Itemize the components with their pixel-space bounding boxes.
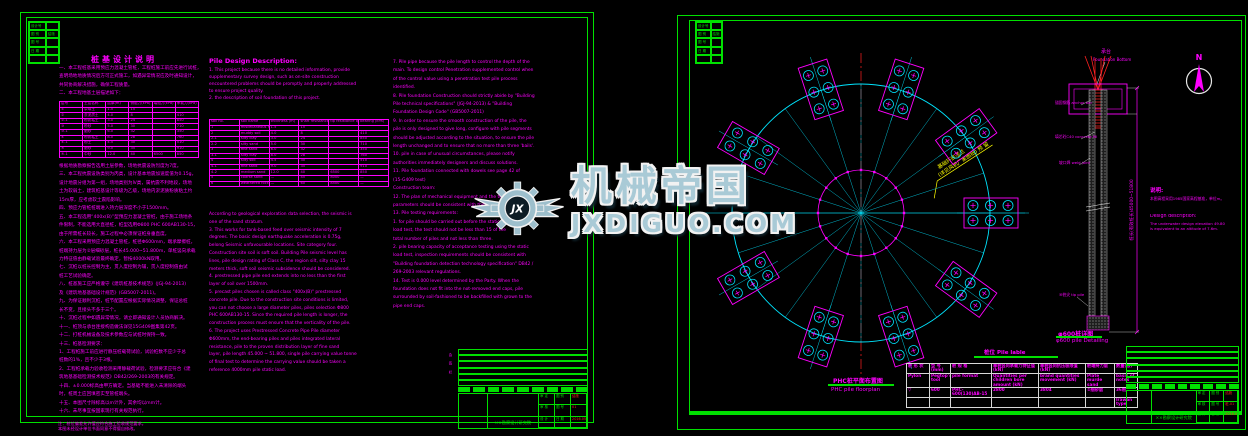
text-line: foundation does not fit into the not-rem…: [393, 286, 589, 294]
text-line: 桩端持力层为②层细砂层，桩长45.000~51.800m，单桩竖向承载: [59, 248, 201, 256]
cell: 中砂: [83, 152, 106, 158]
right-title-block: ××勘察设计研究院 审 定图 别结施审 核图 号桩-01设 计日 期2016.0…: [1126, 346, 1239, 424]
cell: 单桩竖向承载力特征值(kN): [992, 364, 1039, 374]
field-label: 图 别: [1210, 391, 1224, 401]
legend-cell-value: [46, 47, 59, 55]
text-line: belong Seismic unfavourable locations. S…: [209, 242, 391, 250]
text-line: 四、预应力管桩桩端进入持力层深度不小于1500mm。: [59, 205, 201, 213]
text-line: 十五、本图尺寸除标高以m计外，其余均以mm计。: [59, 400, 201, 408]
cell: Pegtop's tool: [930, 373, 951, 387]
inner-circle-tick: [847, 171, 849, 173]
inner-circle-tick: [873, 253, 875, 255]
inner-circle-tick: [901, 225, 903, 227]
text-line: 本图未经设计单位书面同意不得擅自修改。: [58, 426, 146, 431]
cn-soil-table: 层号土层名称层厚(m)侧阻力(kPa)端阻力(kPa)承载力(kPa) ①杂填土…: [59, 101, 199, 158]
field-label: 设 计: [539, 417, 555, 427]
text-line: 6. The project uses Prestressed Concrete…: [209, 328, 391, 336]
detail-caption-en: φ600 pile Detailing: [1056, 338, 1108, 344]
text-line: you can not choose a large diameter pile…: [209, 305, 391, 313]
text-line: 筑地基基础检测技术规范》DB42/269-2003的有关规定。: [59, 374, 201, 382]
title-block-logo-area: [1127, 391, 1152, 423]
text-line: 时，桩周土应回填密实至管桩端头。: [59, 391, 201, 399]
inner-circle-tick: [819, 225, 821, 227]
inner-circle-tick: [895, 187, 897, 189]
text-line: 查明场地地质情况后方可正式施工，如遇异常情况应及时通知设计，: [59, 73, 201, 81]
left-legend-table: 设计号图 别结施图 号日 期: [28, 21, 60, 64]
text-line: supplementary survey design, such as on-…: [209, 74, 391, 81]
field-label: 审 定: [539, 394, 555, 404]
text-line: encountered problems should be promptly …: [209, 81, 391, 88]
cell: Quantities per children bore amount (kN): [992, 373, 1039, 387]
stamp-block: [1152, 384, 1162, 389]
cell: 40: [129, 152, 152, 158]
inner-circle-tick: [885, 247, 887, 249]
legend-cell-value: [46, 22, 59, 30]
inner-circle-tick: [860, 169, 862, 171]
cad-viewer-canvas: 设计号图 别结施图 号日 期 桩基设计说明 一、本工程桩基采用预应力混凝土管桩，…: [0, 0, 1248, 436]
header-cell: 端阻力(kPa): [152, 102, 175, 108]
stamp-block: [502, 387, 514, 392]
text-line: Construction site soil is soft soil. Bui…: [209, 250, 391, 258]
text-line: degrees. The basic design earthquake acc…: [209, 234, 391, 242]
pile-wall-left: [1089, 90, 1095, 316]
pile-cap-group: [930, 257, 1003, 321]
plan-caption-underline: [828, 384, 894, 386]
radial-spoke: [861, 213, 984, 253]
legend-cell-label: [29, 55, 46, 63]
cell: PHC-600(130)AB-15: [951, 388, 992, 398]
label-leader: [1077, 297, 1088, 306]
text-line: 14. Test is 0.000 level determined by th…: [393, 278, 589, 286]
field-label: 日 期: [1210, 412, 1224, 422]
text-line: identified.: [393, 84, 589, 92]
text-line: layer of soil over 1500mm.: [209, 281, 391, 289]
design-note-title-cn: 说明:: [1150, 186, 1242, 194]
cell: 3804: [1039, 388, 1086, 398]
stamp-block: [1178, 384, 1188, 389]
text-line: Pile technical specifications" (JGJ-94-2…: [393, 101, 589, 109]
field-row: 审 核图 号01: [539, 405, 587, 416]
detail-label-tip: ⑩桩尖 tip pile: [1059, 292, 1085, 297]
pile-table-row: ▽ 600 PHC-600(130)AB-15 2800 3804 ②细砂层 3…: [907, 388, 1138, 398]
text-line: 十四、±0.000标高由甲方确定。当基础不能进入未清除的端头: [59, 383, 201, 391]
text-line: 六、本工程采用预应力混凝土管桩，桩径Φ600mm，端承摩擦桩，: [59, 239, 201, 247]
cap-label-cn: 承台: [1101, 48, 1111, 55]
en-soil-table: soil no.soil namethickness (m)shaft resi…: [209, 119, 389, 187]
cell: 型 号(mm): [930, 364, 951, 374]
cell: 8500: [329, 181, 359, 187]
stamp-block: [1165, 384, 1175, 389]
text-line: 共同协商解决措施，确保工程质量。: [59, 82, 201, 90]
text-line: surrounded by soil-fashioned to be backf…: [393, 294, 589, 302]
text-line: concrete pile. Due to the construction s…: [209, 297, 391, 305]
logo-monogram: JX: [509, 202, 524, 215]
text-line: 八、桩基施工应严格遵守《建筑桩基技术规范》(JGJ-94-2013): [59, 281, 201, 289]
field-label: 图 别: [555, 394, 571, 404]
cell: —: [269, 181, 299, 187]
inner-circle-tick: [817, 212, 819, 214]
cell: 桩 形 状: [907, 364, 930, 374]
cell: pile format: [951, 373, 992, 387]
watermark-text: 机械帝国 JXDIGUO.COM: [571, 164, 798, 264]
text-line: 三、本工程抗震设防类别为丙类，设计基本地震加速度值为0.15g，: [59, 171, 201, 179]
radial-spoke: [861, 173, 984, 213]
cell: 单桩竖向抗压极限值(kN): [1039, 364, 1086, 374]
text-line: 1. This project because there is no deta…: [209, 67, 391, 74]
stamp-blocks: [458, 387, 588, 392]
field-label: 图 号: [1210, 402, 1224, 412]
text-line: 7. Pile pipe because the pile length to …: [393, 59, 589, 67]
revision-rows: [1126, 346, 1239, 383]
text-line: length unchanged and to ensure that no m…: [393, 143, 589, 151]
detail-label-anchor: 锚固钢筋 anchor bar: [1055, 100, 1092, 105]
left-title-block: ××勘察设计研究院 审 定图 别结施审 核图 号01设 计日 期2016.05: [458, 349, 588, 429]
pile-cap-group: [876, 52, 926, 126]
field-value: 桩-01: [1224, 402, 1238, 412]
text-line: layer, pile length 45.000 ~ 51.800, sing…: [209, 351, 391, 359]
text-line: 一、本工程桩基采用预应力混凝土管桩，工程桩施工前应先进行试桩，: [59, 65, 201, 73]
stamp-block: [458, 387, 470, 392]
design-note-line-en2: is equivalent to an altitude of 7.6m.: [1150, 226, 1242, 231]
text-line: 5. precast piles chosen is called class …: [209, 289, 391, 297]
text-line: 九、为保证顺利沉桩，桩节配置应根据实际情况调整，保证总桩: [59, 298, 201, 306]
stamp-block: [1190, 384, 1200, 389]
stamp-block: [517, 387, 529, 392]
text-line: 15m厚，应考虑软土震陷影响。: [59, 197, 201, 205]
stamp-block: [488, 387, 500, 392]
stamp-block: [1139, 384, 1149, 389]
text-line: 桩数的1%，且不少于3根。: [59, 357, 201, 365]
cell: 桩端持力层: [1086, 364, 1115, 374]
left-sheet-footer-notes: 注：桩位偏差允许值应符合施工验收规范要求。本图未经设计单位书面同意不得擅自修改。: [58, 421, 146, 432]
watermark-brand: 机械帝国: [571, 164, 798, 208]
text-line: 件限制，不能选用大直径桩，桩型选用Φ800 PHC 600AB130-15，: [59, 222, 201, 230]
field-label: 设 计: [1197, 412, 1211, 422]
inner-circle-tick: [825, 237, 827, 239]
text-line: should be adjusted according to the situ…: [393, 135, 589, 143]
text-line: 2、工程桩承载力验收检测采用静载荷试验，检测要求应符合《建: [59, 366, 201, 374]
text-line: 土为软弱土，建筑桩基设计等级为乙级，场地内淤泥质粉质粘土约: [59, 188, 201, 196]
pile-cap-group: [957, 198, 1025, 228]
legend-cell-label: 设计号: [29, 22, 46, 30]
text-line: 二、本工程地基土层描述如下：: [59, 90, 201, 98]
design-note-line-cn: 本图高程采用1985国家高程基准，单位m。: [1150, 196, 1242, 202]
field-label: 图 号: [555, 405, 571, 415]
detail-label-fill: 填芯砼C40 concrete fill: [1055, 134, 1097, 139]
field-row: 审 定图 别结施: [1197, 391, 1238, 402]
field-row: 设 计日 期2016.05: [1197, 412, 1238, 423]
cell: —: [359, 181, 389, 187]
en-intro-paragraph: 1. This project because there is no deta…: [209, 67, 391, 102]
text-line: 十六、未尽事宜按国家现行有关规范执行。: [59, 408, 201, 416]
cap-label-en: Foundation Bottom: [1093, 57, 1131, 62]
institute-name: ××勘察设计研究院: [488, 394, 539, 428]
signature-strip: 会 签 栏: [449, 353, 454, 423]
text-line: 长不变，且接头不多于三个。: [59, 307, 201, 315]
text-line: 桩工艺试验确定。: [59, 273, 201, 281]
text-line: 4. prestressed pipe pile end extends int…: [209, 273, 391, 281]
field-label: 审 核: [1197, 402, 1211, 412]
field-label: 审 定: [1197, 391, 1211, 401]
cn-intro-paragraph: 一、本工程桩基采用预应力混凝土管桩，工程桩施工前应先进行试桩，查明场地地质情况后…: [59, 65, 201, 99]
cell: ▽: [907, 388, 930, 398]
text-line: 十、沉桩过程中如遇异常情况，请立即通知设计人员协商解决。: [59, 315, 201, 323]
design-note-block: 说明: 本图高程采用1985国家高程基准，单位m。 Design descrip…: [1150, 186, 1242, 231]
header-cell: bearing (kPa): [359, 120, 389, 126]
cell: 850: [175, 152, 198, 158]
field-value: 2016.05: [571, 417, 587, 427]
watermark-domain: JXDIGUO.COM: [571, 210, 798, 238]
text-line: 1、工程桩施工前应进行静压桩载荷试验，试验桩数不应少于总: [59, 349, 201, 357]
cell: 2800: [992, 388, 1039, 398]
text-line: resistance, pile to the proven distribut…: [209, 344, 391, 352]
cell: medium sand: [239, 170, 269, 176]
legend-cell-value: [46, 38, 59, 46]
pile-table-row: Pylon Pegtop's tool pile format Quantiti…: [907, 373, 1138, 387]
dimension-text: 桩长(有效桩长)45000~51800: [1128, 179, 1135, 241]
text-line: lines, pile design rating of Class C, th…: [209, 258, 391, 266]
cell: ⑤-1: [60, 152, 83, 158]
text-line: 设计地震分组为第一组，场地类别为Ⅳ类，属抗震不利地段，场地: [59, 180, 201, 188]
legend-cell-value: 结施: [46, 30, 59, 38]
inner-circle-tick: [835, 247, 837, 249]
cell: [1086, 397, 1115, 407]
pile-table-row: 桩 形 状 型 号(mm) 桩 规 格 单桩竖向承载力特征值(kN) 单桩竖向抗…: [907, 364, 1138, 374]
inner-circle-tick: [819, 199, 821, 201]
inner-circle-tick: [860, 255, 862, 257]
cn-notes-title: 桩基设计说明: [91, 54, 157, 65]
field-value: 结施: [1224, 391, 1238, 401]
text-line: 3. This works for tank-based feed over s…: [209, 227, 391, 235]
legend-cell-label: 设计号: [696, 22, 711, 30]
text-line: According to geological exploration data…: [209, 211, 391, 219]
north-arrow: N: [1179, 48, 1219, 100]
legend-cell-label: 日 期: [29, 47, 46, 55]
title-block-logo-area: [459, 394, 488, 428]
annotation-leader: [927, 181, 944, 198]
text-line: 十三、桩基检测要求：: [59, 341, 201, 349]
text-line: of final test to determine the carrying …: [209, 359, 391, 367]
text-line: 十二、打桩机械设备及技术参数应与试桩时保持一致。: [59, 332, 201, 340]
cell: brand quantities movement (kN): [1039, 373, 1086, 387]
text-line: Φ600mm, the end-bearing piles and piles …: [209, 336, 391, 344]
field-label: 审 核: [539, 405, 555, 415]
cell: [1039, 397, 1086, 407]
revision-row: [458, 380, 588, 386]
inner-circle-tick: [847, 253, 849, 255]
cell: miscellaneous fill: [239, 125, 269, 131]
text-line: 五、本工程选用“400x(B)”型预应力混凝土管桩，由于施工场地条: [59, 214, 201, 222]
title-block-fields: 审 定图 别结施审 核图 号01设 计日 期2016.05: [539, 394, 587, 428]
revision-rows: [458, 349, 588, 386]
plan-caption-en: PHC pile floorplan: [831, 387, 880, 393]
text-line: 根据地质勘察报告选用土层参数，场地抗震设防烈度为7度。: [59, 163, 201, 171]
pile-schedule-table: 桩 形 状 型 号(mm) 桩 规 格 单桩竖向承载力特征值(kN) 单桩竖向抗…: [906, 363, 1138, 408]
institute-name: ××勘察设计研究院: [1152, 391, 1197, 423]
inner-circle-tick: [901, 199, 903, 201]
legend-cell-value: [46, 55, 59, 63]
text-line: 8. Pile foundation Construction should s…: [393, 93, 589, 101]
cell: 6: [210, 181, 240, 187]
header-cell: shaft resistance qsa(kPa): [299, 120, 329, 126]
cell: Pylon: [907, 373, 930, 387]
text-line: pile is only designed to give long, conf…: [393, 126, 589, 134]
field-row: 审 核图 号桩-01: [1197, 402, 1238, 413]
header-cell: 承载力(kPa): [175, 102, 198, 108]
cell: weathered rock: [239, 181, 269, 187]
text-line: one of the sand stratum.: [209, 219, 391, 227]
pile-table-row: Irawan type: [907, 397, 1138, 407]
text-line: 七、沉桩以桩长控制为主，贯入度控制为辅，贯入度控制值由试: [59, 264, 201, 272]
text-line: construction process must ensure that th…: [209, 320, 391, 328]
legend-cell-label: 图 号: [29, 38, 46, 46]
north-label: N: [1196, 53, 1203, 62]
stamp-block: [1229, 384, 1239, 389]
watermark: JX 机械帝国 JXDIGUO.COM: [468, 164, 798, 264]
en-notes-title: Pile Design Description:: [209, 57, 297, 65]
cell: 6500: [152, 152, 175, 158]
watermark-logo: JX: [468, 164, 567, 256]
design-note-title-en: Design description:: [1150, 214, 1242, 219]
stamp-block: [1203, 384, 1213, 389]
text-line: 2. the description of soil foundation of…: [209, 95, 391, 102]
pile-cap-group: [796, 300, 846, 374]
legend-cell-value: [711, 22, 722, 30]
cell: ②细砂层: [1086, 388, 1115, 398]
header-cell: tip resistance qpa(kPa): [329, 120, 359, 126]
header-cell: thickness (m): [269, 120, 299, 126]
cell: 600: [930, 388, 951, 398]
cell: 桩 规 格: [951, 364, 992, 374]
inner-circle-tick: [903, 212, 905, 214]
legend-cell-label: 图 别: [29, 30, 46, 38]
field-value: 结施: [571, 394, 587, 404]
text-line: PHC 600AB130-15. Since the required pile…: [209, 312, 391, 320]
title-block-main: ××勘察设计研究院 审 定图 别结施审 核图 号桩-01设 计日 期2016.0…: [1126, 390, 1239, 424]
stamp-block: [561, 387, 573, 392]
cell: [951, 397, 992, 407]
text-line: main. To design control Penetration supp…: [393, 67, 589, 75]
radial-spoke: [861, 213, 937, 317]
text-line: 及《建筑地基基础设计规范》(GB5007-2011)。: [59, 290, 201, 298]
text-line: Foundation Design Code" (GB5007-2011): [393, 109, 589, 117]
stamp-block: [576, 387, 588, 392]
inner-circle-tick: [885, 177, 887, 179]
title-block-main: ××勘察设计研究院 审 定图 别结施审 核图 号01设 计日 期2016.05: [458, 393, 588, 429]
inner-circle-tick: [825, 187, 827, 189]
text-line: 力特征值由静载试验最终确定，暂按4000kN取用。: [59, 256, 201, 264]
text-line: 269-2003 relevant regulations.: [393, 269, 589, 277]
en-soil-row: 6weathered rock —60 8500—: [210, 181, 389, 187]
text-line: 10. pile in case of unusual circumstance…: [393, 151, 589, 159]
cell: Plate murde sand: [1086, 373, 1115, 387]
inner-circle-tick: [873, 171, 875, 173]
revision-row: [1126, 377, 1239, 383]
pile-table-title-underline: [974, 356, 1058, 358]
header-cell: 侧阻力(kPa): [129, 102, 152, 108]
pile-cap-group: [796, 52, 846, 126]
field-row: 审 定图 别结施: [539, 394, 587, 405]
pile-table-title: 桩位 Pile lable: [984, 348, 1026, 356]
stamp-blocks: [1126, 384, 1239, 389]
cn-soil-row: ⑤-1中砂 12.040 6500850: [60, 152, 199, 158]
text-line: of the control value using a penetration…: [393, 76, 589, 84]
stamp-block: [1216, 384, 1226, 389]
text-line: 十一、桩顶与承台连接构造做法详见15G409图集第42页。: [59, 324, 201, 332]
stamp-block: [547, 387, 559, 392]
text-line: pipe end caps.: [393, 303, 589, 311]
gear-icon: JX: [491, 182, 544, 235]
field-row: 设 计日 期2016.05: [539, 417, 587, 428]
inner-circle-tick: [835, 177, 837, 179]
pile-wall-right: [1101, 90, 1107, 316]
stamp-block: [532, 387, 544, 392]
cn-body-paragraphs: 根据地质勘察报告选用土层参数，场地抗震设防烈度为7度。三、本工程抗震设防类别为丙…: [59, 163, 201, 417]
stamp-block: [1126, 384, 1136, 389]
text-line: 由于所需桩长较长，施工过程中必须保证桩身垂直度。: [59, 231, 201, 239]
cell: [930, 397, 951, 407]
field-value: 01: [571, 405, 587, 415]
cell: [907, 397, 930, 407]
en-body-paragraphs: According to geological exploration data…: [209, 211, 391, 375]
cell: [992, 397, 1039, 407]
pile-detail-svg: 承台 Foundation Bottom 桩长(有效桩长)45000~51800…: [1053, 44, 1143, 346]
text-line: reference 4000mm pile static load.: [209, 367, 391, 375]
text-line: meters thick, soft soil seismic subsiden…: [209, 266, 391, 274]
inner-circle-tick: [895, 237, 897, 239]
pile-tip: [1087, 316, 1109, 330]
stamp-block: [473, 387, 485, 392]
field-value: 2016.05: [1224, 412, 1238, 422]
text-line: 9. In order to ensure the smooth constru…: [393, 118, 589, 126]
cell: 60: [299, 181, 329, 187]
north-needle: [1194, 64, 1204, 92]
radial-spoke: [861, 109, 937, 213]
field-label: 日 期: [555, 417, 571, 427]
text-line: to ensure project quality.: [209, 88, 391, 95]
cell: 12.0: [106, 152, 129, 158]
title-block-fields: 审 定图 别结施审 核图 号桩-01设 计日 期2016.05: [1197, 391, 1238, 423]
